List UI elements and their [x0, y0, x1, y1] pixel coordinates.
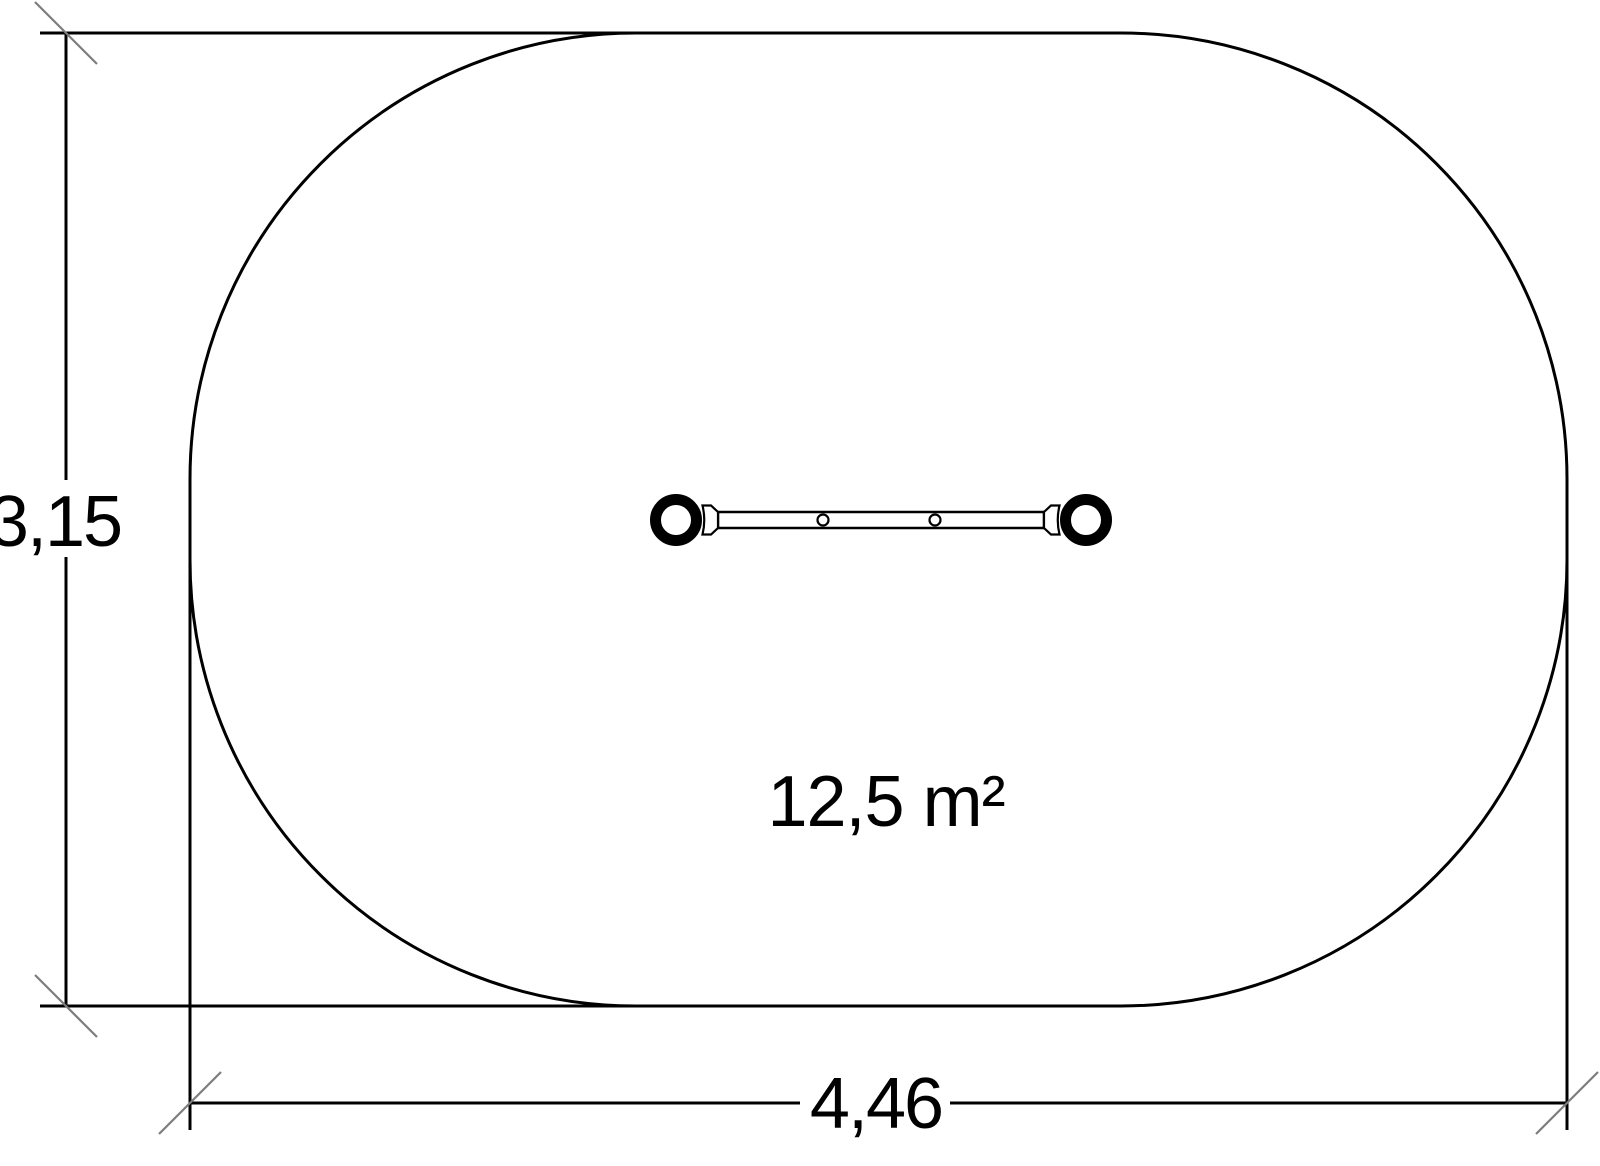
right-shackle	[1044, 506, 1060, 535]
left-ring	[656, 500, 697, 541]
balance-beam	[656, 500, 1107, 541]
plan-drawing	[0, 0, 1600, 1166]
beam-bar	[718, 512, 1044, 528]
beam-hole-left	[818, 515, 829, 526]
left-shackle	[703, 506, 719, 535]
area-label: 12,5 m²	[736, 766, 1036, 838]
beam-hole-right	[930, 515, 941, 526]
height-dimension-label: 3,15	[0, 486, 130, 558]
width-dimension-label: 4,46	[776, 1068, 976, 1140]
right-ring	[1066, 500, 1107, 541]
